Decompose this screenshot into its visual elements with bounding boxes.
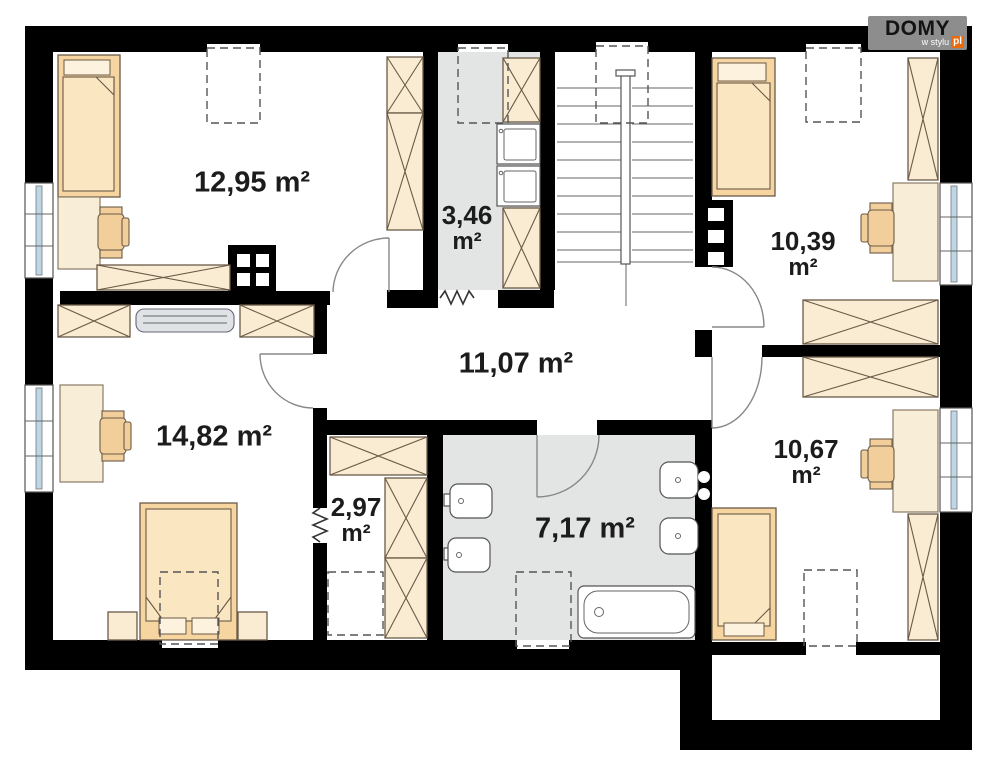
dryer (497, 166, 540, 206)
office-chair-upper-right (861, 203, 894, 253)
balcony (712, 655, 940, 720)
chimney-bedroom1 (228, 245, 276, 292)
room-label-hall: 11,07m² (459, 350, 573, 379)
wall-stub-b (498, 290, 554, 308)
wall-hall-bath-right (597, 420, 695, 435)
door-bedroom-lower-right (712, 357, 762, 428)
door-bedroom-upper-left (333, 238, 389, 292)
area-value: 12,95 (194, 167, 267, 199)
office-chair-lower-left (100, 411, 131, 461)
desk-lower-left (60, 385, 103, 482)
area-unit: m² (275, 167, 310, 199)
room-label-bedroom-upper-right: 10,39m² (770, 228, 835, 280)
nightstand-right (238, 612, 267, 640)
wardrobe-lower-left-b (240, 305, 314, 337)
door-bedroom-lower-left (260, 354, 313, 408)
wall-balcony-bottom (680, 720, 972, 750)
area-value: 11,07 (459, 348, 530, 380)
bed-lower-right (712, 508, 776, 640)
wardrobe-upper-left-bottom (97, 265, 230, 290)
wardrobe-upper-left-column (387, 57, 423, 230)
wall-hall-left-mid (313, 408, 327, 508)
office-chair-lower-right (861, 439, 894, 489)
wardrobe-lower-right-column (908, 514, 938, 640)
window-right-upper (940, 183, 972, 285)
desk-upper-right (893, 183, 938, 281)
dresser (136, 309, 234, 332)
room-label-bedroom-lower-left: 14,82m² (156, 423, 272, 452)
wardrobe-closet-top (330, 437, 427, 475)
area-unit: m² (331, 521, 382, 546)
door-bedroom-upper-right (712, 267, 764, 327)
wall-closet-right (427, 420, 443, 642)
room-label-bedroom-upper-left: 12,95m² (194, 169, 310, 198)
wall-bottom (25, 640, 680, 670)
area-value: 10,39 (770, 226, 835, 256)
bed-upper-right (712, 58, 775, 196)
chimney-stairwell (695, 200, 733, 267)
area-unit: m² (237, 421, 272, 453)
room-label-bathroom: 7,17m² (535, 515, 635, 544)
wardrobe-closet-column (385, 478, 427, 638)
office-chair-upper-left (98, 207, 129, 258)
area-value: 2,97 (331, 492, 382, 522)
area-unit: m² (600, 513, 635, 545)
window-left-lower (25, 385, 53, 492)
area-unit: m² (770, 255, 835, 280)
desk-lower-right (893, 410, 938, 512)
radiator-symbol-utility (440, 291, 474, 304)
sink-upper (444, 484, 492, 518)
wall-left (25, 26, 53, 670)
radiator-symbol-closet (313, 508, 327, 542)
window-left-upper (25, 183, 53, 278)
sink-lower (444, 538, 490, 572)
washer (497, 124, 540, 164)
wardrobe-utility-bottom (503, 208, 540, 288)
room-label-closet: 2,97m² (331, 494, 382, 546)
desk-upper-left (58, 197, 100, 269)
nightstand-left (108, 612, 137, 640)
room-label-utility: 3,46m² (442, 202, 493, 254)
area-unit: m² (773, 463, 838, 488)
wall-utility-right (540, 52, 555, 290)
bed-upper-left (58, 55, 120, 197)
room-label-bedroom-lower-right: 10,67m² (773, 436, 838, 488)
wall-utility-left (423, 52, 438, 308)
cistern-button-a (698, 471, 710, 483)
staircase (555, 52, 695, 306)
toilet (660, 462, 698, 498)
area-value: 7,17 (535, 513, 591, 545)
bidet (660, 518, 698, 554)
wall-hall-left-upper (313, 291, 327, 354)
window-right-lower (940, 408, 972, 512)
area-value: 3,46 (442, 200, 493, 230)
area-value: 10,67 (773, 434, 838, 464)
wardrobe-lower-right-top (803, 357, 938, 397)
wall-mid-right (762, 345, 940, 357)
wall-stub-a (387, 290, 438, 308)
floor-plan: 12,95m² 3,46m² 10,39m² 11,07m² 14,82m² 2… (0, 0, 995, 772)
wardrobe-lower-left-a (58, 305, 130, 337)
brand-tld: pl (951, 36, 964, 48)
floor-plan-drawing (0, 0, 995, 772)
wardrobe-upper-right-bottom (803, 300, 938, 344)
handrail (621, 72, 630, 264)
cistern-button-b (698, 488, 710, 500)
area-unit: m² (538, 348, 573, 380)
wall-hall-left-lower (313, 543, 327, 640)
brand-tagline: w stylu (922, 38, 950, 47)
wall-bedroom1-bottom (60, 291, 330, 305)
wall-right (940, 26, 972, 750)
wall-stairwell-block (695, 330, 712, 357)
bathtub (578, 586, 695, 638)
area-unit: m² (442, 229, 493, 254)
area-value: 14,82 (156, 421, 229, 453)
wardrobe-upper-right-column (908, 58, 938, 180)
brand-logo[interactable]: DOMY w stylu pl (868, 16, 967, 50)
